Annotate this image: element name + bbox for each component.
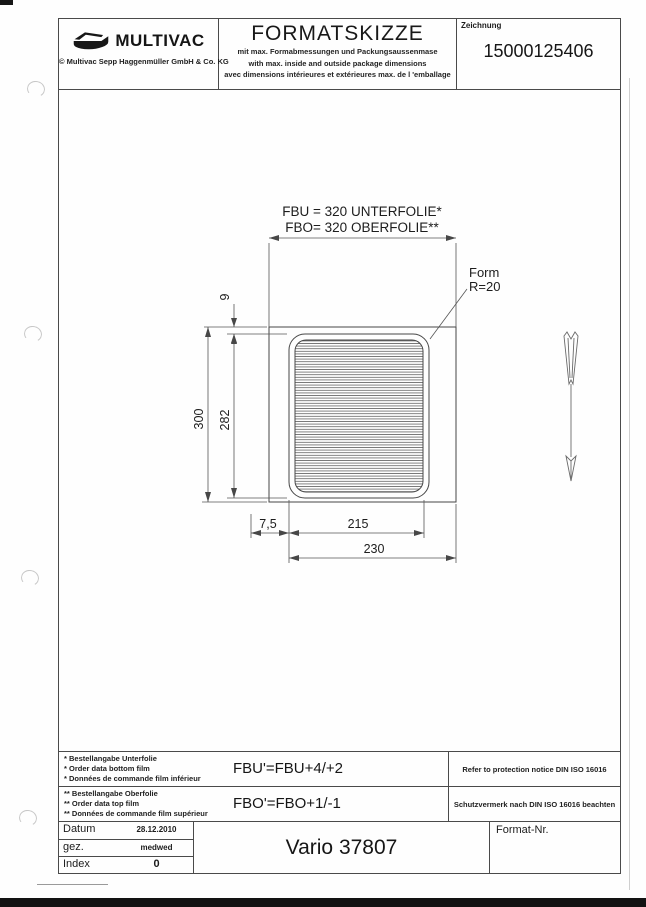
note-line-fr: ** Données de commande film supérieur [64, 809, 208, 819]
dim-width-inner: 215 [348, 517, 369, 531]
drawing-number-value: 15000125406 [457, 41, 620, 62]
punch-hole [23, 324, 44, 343]
note-lines: * Bestellangabe Unterfolie * Order data … [64, 754, 201, 784]
page-edge-shadow [629, 78, 630, 890]
dim-top-offset: 9 [218, 293, 232, 300]
drawing-number-label: Zeichnung [461, 21, 501, 30]
subtitle-de: mit max. Formabmessungen und Packungsaus… [219, 46, 456, 58]
note-line-en: ** Order data top film [64, 799, 208, 809]
page-title: FORMATSKIZZE [219, 22, 456, 46]
subtitle-en: with max. inside and outside package dim… [219, 58, 456, 70]
punch-hole [18, 808, 39, 827]
format-sketch-svg: FBU = 320 UNTERFOLIE* FBO= 320 OBERFOLIE… [59, 90, 620, 751]
datum-label: Datum [63, 823, 95, 835]
punch-hole [26, 79, 47, 98]
form-leader-line [430, 289, 467, 339]
logo-copyright: © Multivac Sepp Haggenmüller GmbH & Co. … [59, 57, 218, 66]
title-block-row-datum: Datum 28.12.2010 [59, 822, 194, 840]
subtitle-fr: avec dimensions intérieures et extérieur… [219, 69, 456, 81]
format-nr-label: Format-Nr. [496, 824, 549, 836]
format-nr-cell: Format-Nr. [489, 822, 620, 873]
film-direction-arrow [564, 332, 578, 481]
protection-notice-de: Schutzvermerk nach DIN ISO 16016 beachte… [448, 787, 620, 822]
formed-area-hatch [295, 340, 423, 492]
note-line-fr: * Données de commande film inférieur [64, 774, 201, 784]
note-line-en: * Order data bottom film [64, 764, 201, 774]
title-block-row-gez: gez. medwed [59, 840, 194, 857]
note-line-de: * Bestellangabe Unterfolie [64, 754, 201, 764]
title-block: Datum 28.12.2010 gez. medwed Index 0 Var… [59, 821, 620, 873]
title-block-row-index: Index 0 [59, 857, 194, 873]
dim-width-outer: 230 [364, 542, 385, 556]
protection-notice-en: Refer to protection notice DIN ISO 16016 [448, 752, 620, 786]
scan-bottom-bar [0, 898, 646, 907]
index-label: Index [63, 858, 90, 870]
form-label: Form [469, 265, 499, 280]
scan-corner-mark [0, 0, 13, 5]
scanned-format-sketch-page: MULTIVAC © Multivac Sepp Haggenmüller Gm… [0, 0, 646, 907]
dim-height-outer: 300 [192, 409, 206, 430]
gez-value: medwed [119, 843, 194, 852]
gez-label: gez. [63, 841, 84, 853]
note-row-bottom-film: * Bestellangabe Unterfolie * Order data … [59, 752, 620, 787]
note-line-de: ** Bestellangabe Oberfolie [64, 789, 208, 799]
film-width-label-unterfolie: FBU = 320 UNTERFOLIE* [282, 204, 442, 219]
punch-hole [20, 568, 41, 587]
drawing-frame: MULTIVAC © Multivac Sepp Haggenmüller Gm… [58, 18, 621, 874]
machine-name: Vario 37807 [194, 822, 489, 873]
technical-drawing: FBU = 320 UNTERFOLIE* FBO= 320 OBERFOLIE… [59, 90, 620, 751]
datum-value: 28.12.2010 [119, 825, 194, 834]
formula-top-film: FBO'=FBO+1/-1 [233, 795, 341, 812]
formula-bottom-film: FBU'=FBU+4/+2 [233, 760, 343, 777]
document-title-block: FORMATSKIZZE mit max. Formabmessungen un… [219, 19, 457, 90]
index-value: 0 [119, 858, 194, 870]
dim-height-inner: 282 [218, 410, 232, 431]
form-radius-label: R=20 [469, 279, 500, 294]
multivac-logo-icon [72, 29, 110, 53]
brand-name: MULTIVAC [115, 31, 204, 51]
drawing-number-block: Zeichnung 15000125406 [457, 19, 620, 90]
dim-left-offset: 7,5 [259, 517, 276, 531]
scan-artifact-line [37, 884, 108, 885]
note-row-top-film: ** Bestellangabe Oberfolie ** Order data… [59, 787, 620, 822]
note-lines: ** Bestellangabe Oberfolie ** Order data… [64, 789, 208, 819]
logo-block: MULTIVAC © Multivac Sepp Haggenmüller Gm… [59, 19, 219, 90]
order-notes-table: * Bestellangabe Unterfolie * Order data … [59, 751, 620, 821]
logo-row: MULTIVAC [59, 29, 218, 53]
film-width-label-oberfolie: FBO= 320 OBERFOLIE** [285, 220, 439, 235]
